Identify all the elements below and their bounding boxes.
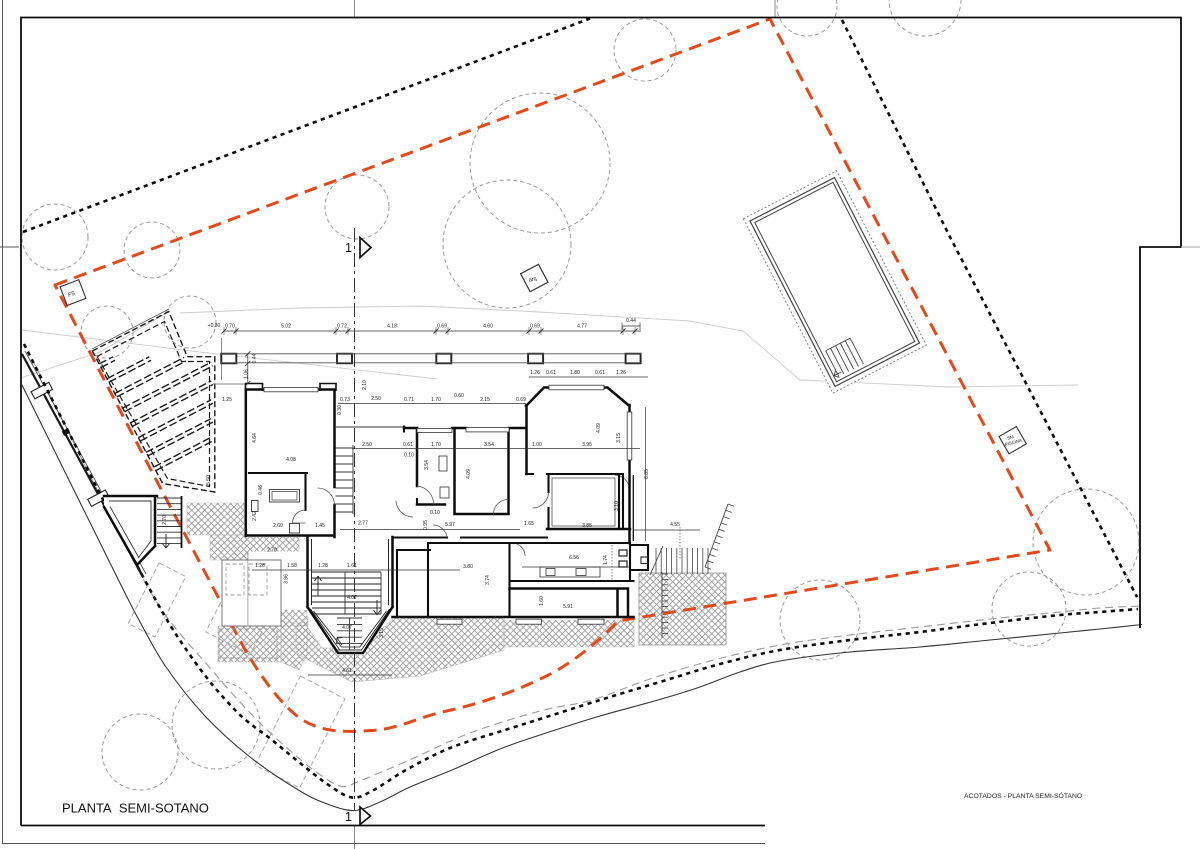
- svg-text:2.50: 2.50: [371, 396, 381, 402]
- svg-text:0.46: 0.46: [258, 485, 264, 495]
- svg-text:0.69: 0.69: [437, 324, 447, 330]
- svg-text:1.74: 1.74: [603, 555, 609, 565]
- svg-text:2.15: 2.15: [480, 397, 490, 403]
- svg-text:4.64: 4.64: [252, 433, 258, 443]
- svg-text:3.15: 3.15: [616, 433, 622, 443]
- svg-text:0.10: 0.10: [430, 510, 440, 516]
- svg-text:3.15: 3.15: [379, 628, 385, 638]
- svg-text:1.00: 1.00: [532, 442, 542, 448]
- svg-text:1.80: 1.80: [570, 370, 580, 376]
- svg-text:4.09: 4.09: [596, 423, 602, 433]
- svg-text:1.06: 1.06: [244, 369, 250, 379]
- svg-text:0.10: 0.10: [404, 453, 414, 459]
- svg-text:4.60: 4.60: [483, 324, 493, 330]
- svg-text:3.54: 3.54: [424, 460, 430, 470]
- svg-text:1: 1: [345, 241, 352, 255]
- svg-text:4.07: 4.07: [342, 625, 352, 631]
- svg-text:3.74: 3.74: [485, 575, 491, 585]
- svg-text:5.50: 5.50: [206, 475, 212, 485]
- svg-text:0.44: 0.44: [626, 318, 636, 324]
- svg-text:4.08: 4.08: [286, 457, 296, 463]
- svg-text:5.97: 5.97: [445, 522, 455, 528]
- svg-text:1.61: 1.61: [347, 563, 357, 569]
- svg-text:3.95: 3.95: [582, 442, 592, 448]
- svg-text:2.70: 2.70: [162, 515, 168, 525]
- svg-text:1.60: 1.60: [539, 596, 545, 606]
- svg-text:1: 1: [345, 810, 352, 824]
- svg-text:0.70: 0.70: [225, 324, 235, 330]
- svg-text:2.77: 2.77: [358, 521, 368, 527]
- svg-text:3.10: 3.10: [614, 501, 620, 511]
- svg-text:0.61: 0.61: [595, 370, 605, 376]
- svg-text:ACOTADOS - PLANTA SEMI-SÓTANO: ACOTADOS - PLANTA SEMI-SÓTANO: [964, 791, 1082, 800]
- svg-text:1.70: 1.70: [431, 397, 441, 403]
- svg-text:1.58: 1.58: [287, 563, 297, 569]
- svg-text:2.50: 2.50: [362, 442, 372, 448]
- svg-text:0.72: 0.72: [337, 324, 347, 330]
- svg-text:3.80: 3.80: [463, 564, 473, 570]
- svg-text:PLANTA SEMI-SOTANO: PLANTA SEMI-SOTANO: [62, 801, 209, 816]
- svg-text:0.61: 0.61: [546, 370, 556, 376]
- svg-text:0.71: 0.71: [404, 397, 414, 403]
- svg-text:3.54: 3.54: [484, 442, 494, 448]
- svg-text:4.61: 4.61: [342, 668, 352, 674]
- svg-text:4.09: 4.09: [466, 469, 472, 479]
- svg-text:4.55: 4.55: [670, 522, 680, 528]
- svg-text:5.02: 5.02: [281, 324, 291, 330]
- svg-text:1.45: 1.45: [315, 523, 325, 529]
- svg-text:1.28: 1.28: [318, 563, 328, 569]
- svg-text:1.28: 1.28: [255, 563, 265, 569]
- svg-text:1.26: 1.26: [530, 370, 540, 376]
- svg-text:0.73: 0.73: [340, 397, 350, 403]
- svg-text:0.69: 0.69: [516, 397, 526, 403]
- svg-text:0.30: 0.30: [337, 405, 343, 415]
- svg-text:6.56: 6.56: [569, 555, 579, 561]
- svg-text:+0.30: +0.30: [208, 323, 221, 329]
- svg-text:2.10: 2.10: [362, 380, 368, 390]
- svg-text:4.18: 4.18: [387, 324, 397, 330]
- svg-text:3.85: 3.85: [582, 523, 592, 529]
- svg-text:0.44: 0.44: [252, 353, 258, 363]
- svg-text:2.42: 2.42: [252, 511, 258, 521]
- svg-text:3.96: 3.96: [284, 574, 290, 584]
- svg-text:4.07: 4.07: [347, 595, 357, 601]
- svg-text:0.60: 0.60: [454, 393, 464, 399]
- svg-text:1.26: 1.26: [616, 370, 626, 376]
- svg-text:0.95: 0.95: [423, 520, 429, 530]
- svg-text:0.69: 0.69: [530, 324, 540, 330]
- svg-text:2.60: 2.60: [273, 523, 283, 529]
- svg-text:6.85: 6.85: [644, 469, 650, 479]
- svg-text:1.65: 1.65: [524, 521, 534, 527]
- svg-text:1.25: 1.25: [222, 397, 232, 403]
- svg-text:1.70: 1.70: [431, 442, 441, 448]
- svg-text:4.77: 4.77: [577, 324, 587, 330]
- svg-text:0.61: 0.61: [403, 442, 413, 448]
- svg-text:5.91: 5.91: [563, 604, 573, 610]
- svg-text:2.70: 2.70: [267, 548, 277, 554]
